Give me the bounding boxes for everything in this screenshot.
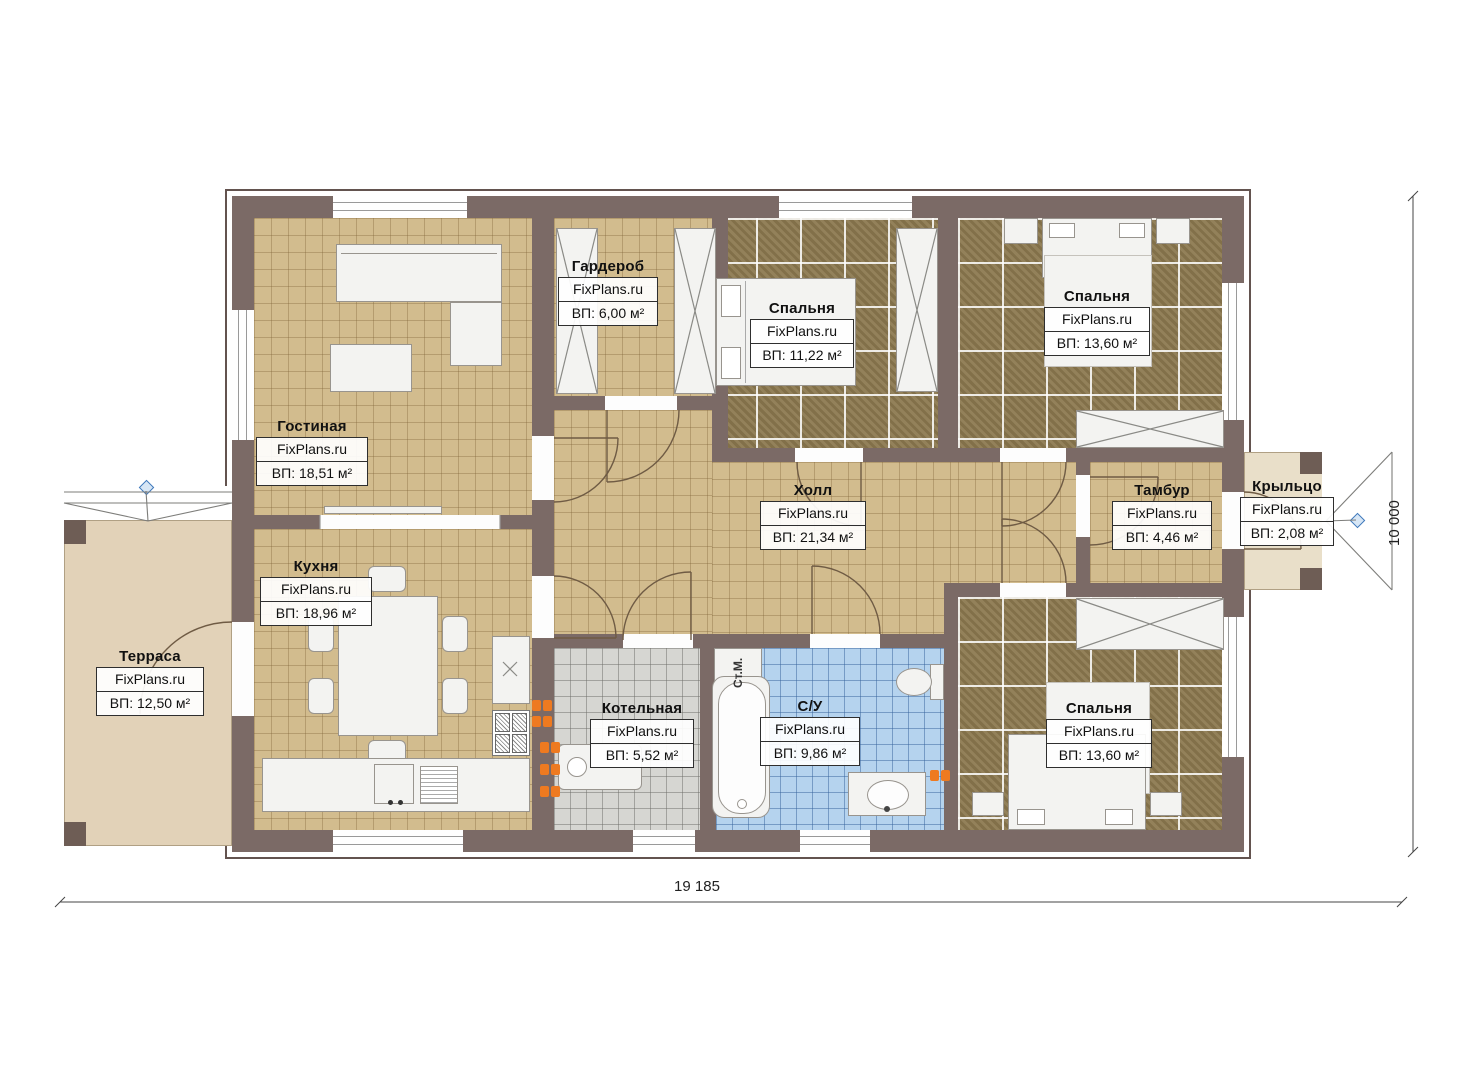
room-name: Спальня xyxy=(1044,288,1150,305)
room-label-box: FixPlans.ru ВП: 13,60 м² xyxy=(1044,307,1150,356)
room-area: ВП: 6,00 м² xyxy=(559,301,657,325)
room-label-bedroom-top-right: Спальня FixPlans.ru ВП: 13,60 м² xyxy=(1044,288,1150,356)
room-area: ВП: 4,46 м² xyxy=(1113,525,1211,549)
canopy-v xyxy=(64,503,148,521)
room-name: Крыльцо xyxy=(1240,478,1334,495)
room-area: ВП: 12,50 м² xyxy=(97,691,203,715)
room-name: Котельная xyxy=(590,700,694,717)
watermark: FixPlans.ru xyxy=(591,720,693,743)
room-area: ВП: 18,51 м² xyxy=(257,461,367,485)
room-label-box: FixPlans.ru ВП: 21,34 м² xyxy=(760,501,866,550)
room-area: ВП: 18,96 м² xyxy=(261,601,371,625)
canopy-tie xyxy=(146,491,148,521)
room-label-box: FixPlans.ru ВП: 18,51 м² xyxy=(256,437,368,486)
room-label-bedroom-bottom-right: Спальня FixPlans.ru ВП: 13,60 м² xyxy=(1046,700,1152,768)
canopy-v xyxy=(1326,521,1392,590)
door-arc xyxy=(1002,462,1066,526)
room-area: ВП: 13,60 м² xyxy=(1047,743,1151,767)
room-label-living: Гостиная FixPlans.ru ВП: 18,51 м² xyxy=(256,418,368,486)
watermark: FixPlans.ru xyxy=(761,718,859,741)
room-area: ВП: 5,52 м² xyxy=(591,743,693,767)
room-label-box: FixPlans.ru ВП: 5,52 м² xyxy=(590,719,694,768)
room-name: Спальня xyxy=(1046,700,1152,717)
room-label-porch: Крыльцо FixPlans.ru ВП: 2,08 м² xyxy=(1240,478,1334,546)
watermark: FixPlans.ru xyxy=(761,502,865,525)
door-arc xyxy=(812,566,880,634)
room-label-kitchen: Кухня FixPlans.ru ВП: 18,96 м² xyxy=(260,558,372,626)
room-label-vestibule: Тамбур FixPlans.ru ВП: 4,46 м² xyxy=(1112,482,1212,550)
floor-plan: Гостиная FixPlans.ru ВП: 18,51 м² Кухня … xyxy=(0,0,1474,1080)
room-label-terrace: Терраса FixPlans.ru ВП: 12,50 м² xyxy=(96,648,204,716)
room-area: ВП: 13,60 м² xyxy=(1045,331,1149,355)
washing-machine-label: Ст.М. xyxy=(714,648,762,698)
room-name: С/У xyxy=(760,698,860,715)
watermark: FixPlans.ru xyxy=(1047,720,1151,743)
room-label-box: FixPlans.ru ВП: 11,22 м² xyxy=(750,319,854,368)
room-label-box: FixPlans.ru ВП: 13,60 м² xyxy=(1046,719,1152,768)
room-name: Гардероб xyxy=(558,258,658,275)
room-name: Кухня xyxy=(260,558,372,575)
dimension-label-width: 19 185 xyxy=(652,878,742,895)
room-name: Тамбур xyxy=(1112,482,1212,499)
watermark: FixPlans.ru xyxy=(1045,308,1149,331)
room-area: ВП: 2,08 м² xyxy=(1241,521,1333,545)
room-label-bedroom-top-middle: Спальня FixPlans.ru ВП: 11,22 м² xyxy=(750,300,854,368)
watermark: FixPlans.ru xyxy=(751,320,853,343)
room-label-hall: Холл FixPlans.ru ВП: 21,34 м² xyxy=(760,482,866,550)
room-label-boiler: Котельная FixPlans.ru ВП: 5,52 м² xyxy=(590,700,694,768)
door-arc xyxy=(554,438,618,502)
room-label-box: FixPlans.ru ВП: 9,86 м² xyxy=(760,717,860,766)
watermark: FixPlans.ru xyxy=(97,668,203,691)
canopy-v xyxy=(1326,452,1392,521)
room-label-bathroom: С/У FixPlans.ru ВП: 9,86 м² xyxy=(760,698,860,766)
room-name: Холл xyxy=(760,482,866,499)
watermark: FixPlans.ru xyxy=(1113,502,1211,525)
watermark: FixPlans.ru xyxy=(1241,498,1333,521)
room-area: ВП: 9,86 м² xyxy=(761,741,859,765)
dimension-lines xyxy=(55,191,1418,907)
room-label-box: FixPlans.ru ВП: 4,46 м² xyxy=(1112,501,1212,550)
canopy-v xyxy=(148,503,232,521)
room-area: ВП: 11,22 м² xyxy=(751,343,853,367)
room-area: ВП: 21,34 м² xyxy=(761,525,865,549)
watermark: FixPlans.ru xyxy=(257,438,367,461)
door-arc xyxy=(623,572,691,640)
watermark: FixPlans.ru xyxy=(559,278,657,301)
room-label-box: FixPlans.ru ВП: 6,00 м² xyxy=(558,277,658,326)
room-name: Спальня xyxy=(750,300,854,317)
room-name: Гостиная xyxy=(256,418,368,435)
room-label-box: FixPlans.ru ВП: 12,50 м² xyxy=(96,667,204,716)
room-name: Терраса xyxy=(96,648,204,665)
room-label-wardrobe: Гардероб FixPlans.ru ВП: 6,00 м² xyxy=(558,258,658,326)
watermark: FixPlans.ru xyxy=(261,578,371,601)
room-label-box: FixPlans.ru ВП: 18,96 м² xyxy=(260,577,372,626)
door-arc xyxy=(1002,519,1066,583)
dimension-label-height: 10 000 xyxy=(1386,478,1403,568)
opening-caps xyxy=(320,515,500,529)
room-label-box: FixPlans.ru ВП: 2,08 м² xyxy=(1240,497,1334,546)
door-arc xyxy=(554,576,616,638)
